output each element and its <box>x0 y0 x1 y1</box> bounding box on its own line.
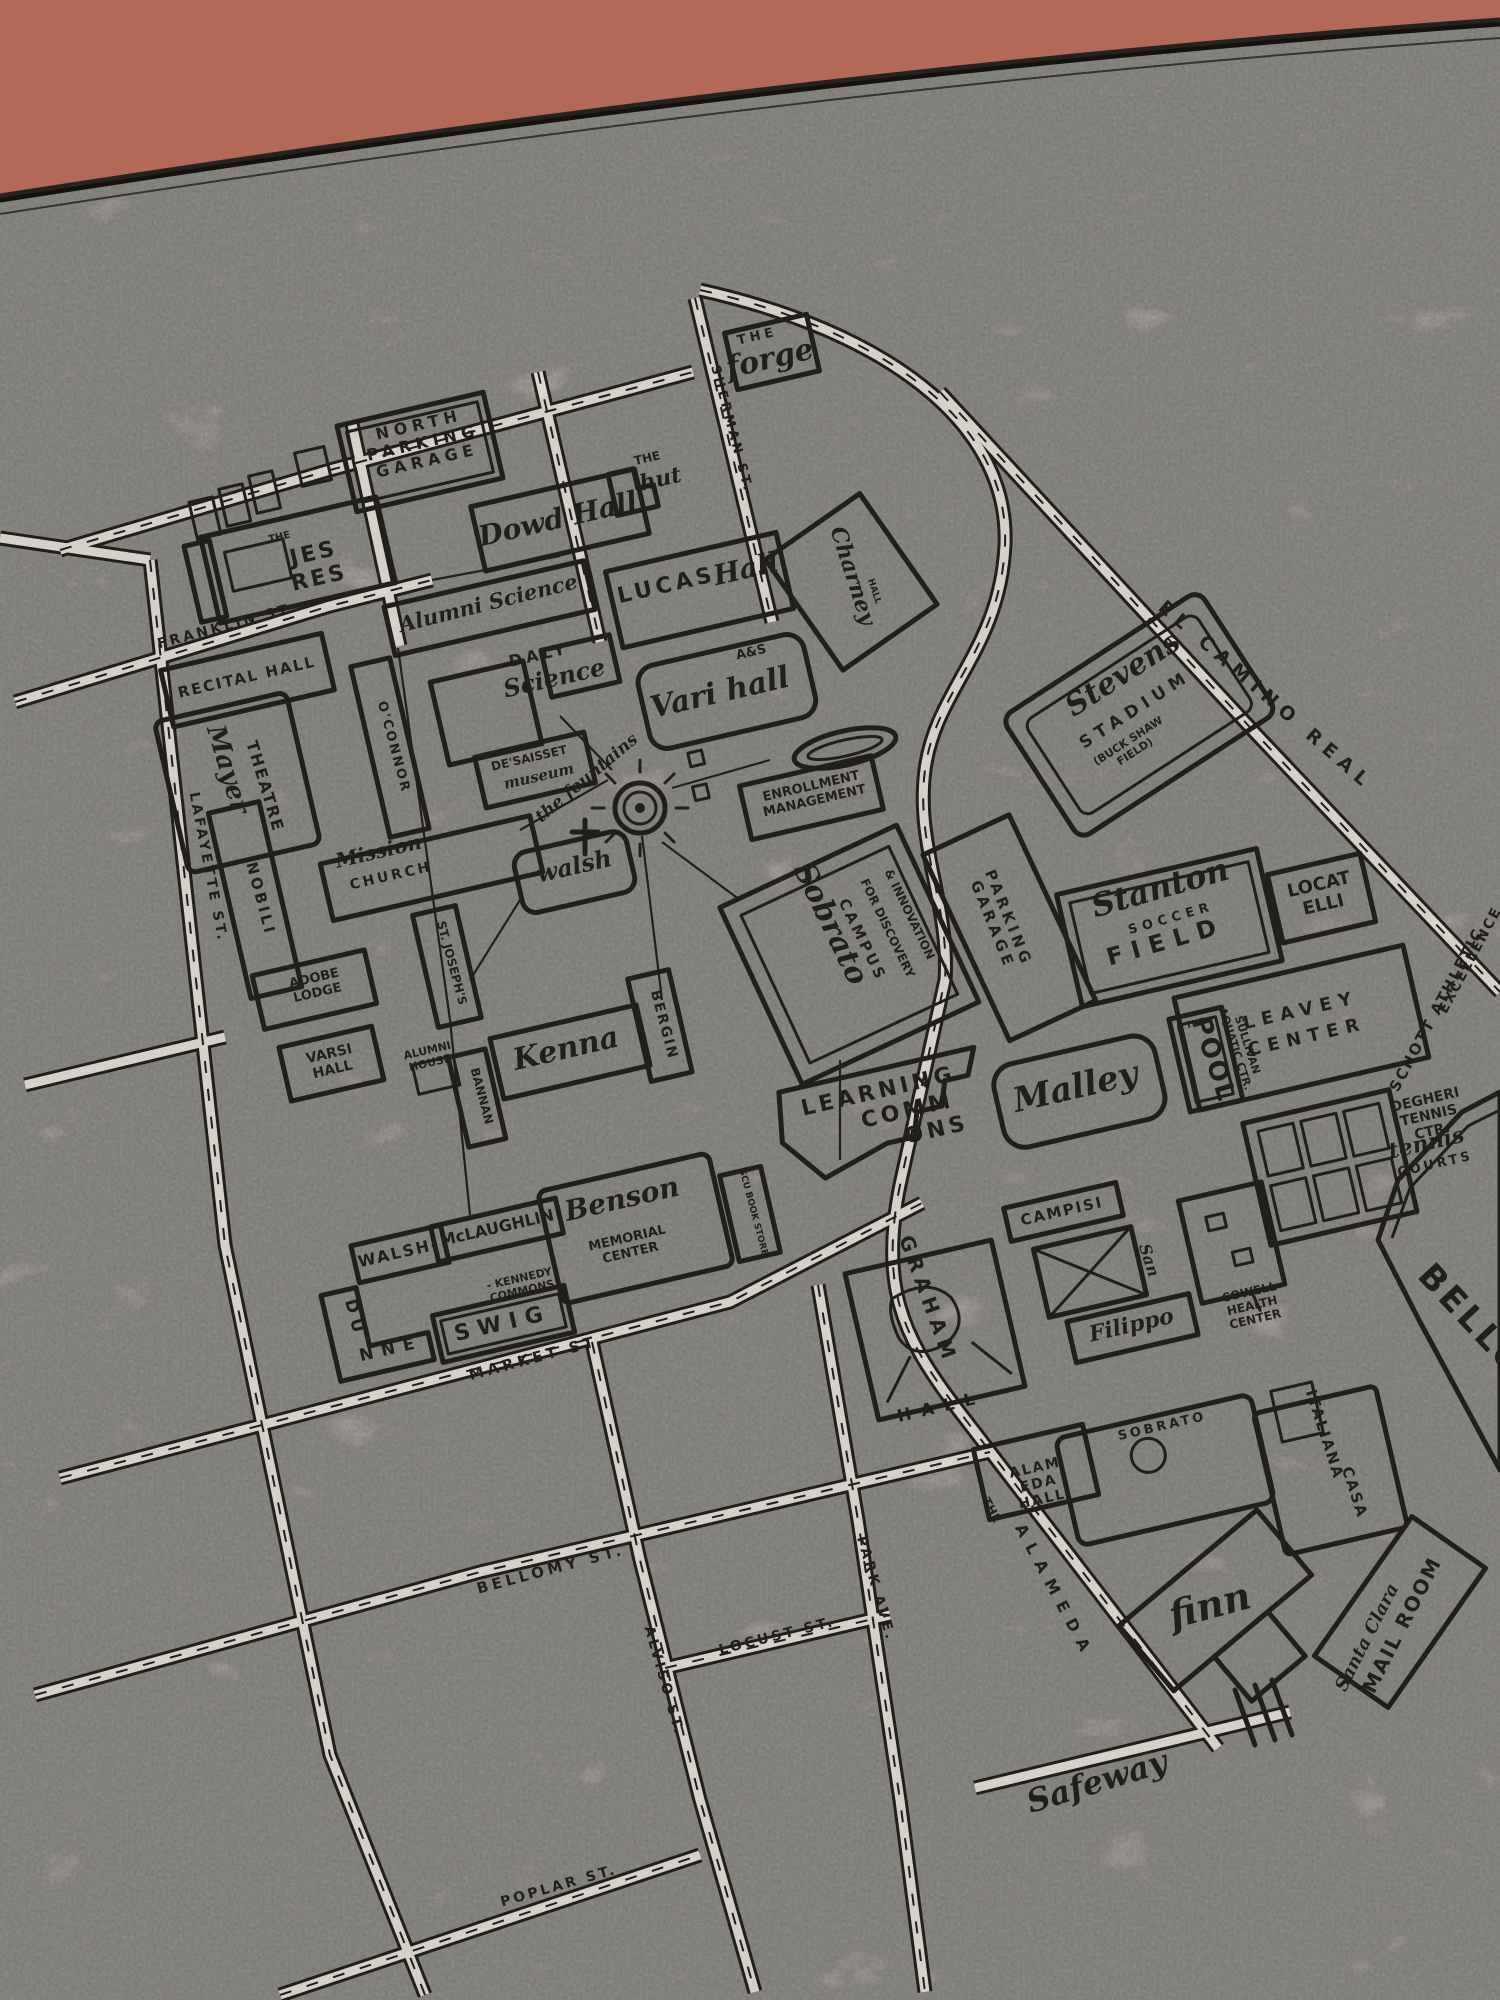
scene-svg: THEforgeNORTHPARKINGGARAGEDowd HallTHEhu… <box>0 0 1500 2000</box>
fold-shading <box>0 22 1500 2000</box>
photo-of-campus-map-tea-towel: THEforgeNORTHPARKINGGARAGEDowd HallTHEhu… <box>0 0 1500 2000</box>
